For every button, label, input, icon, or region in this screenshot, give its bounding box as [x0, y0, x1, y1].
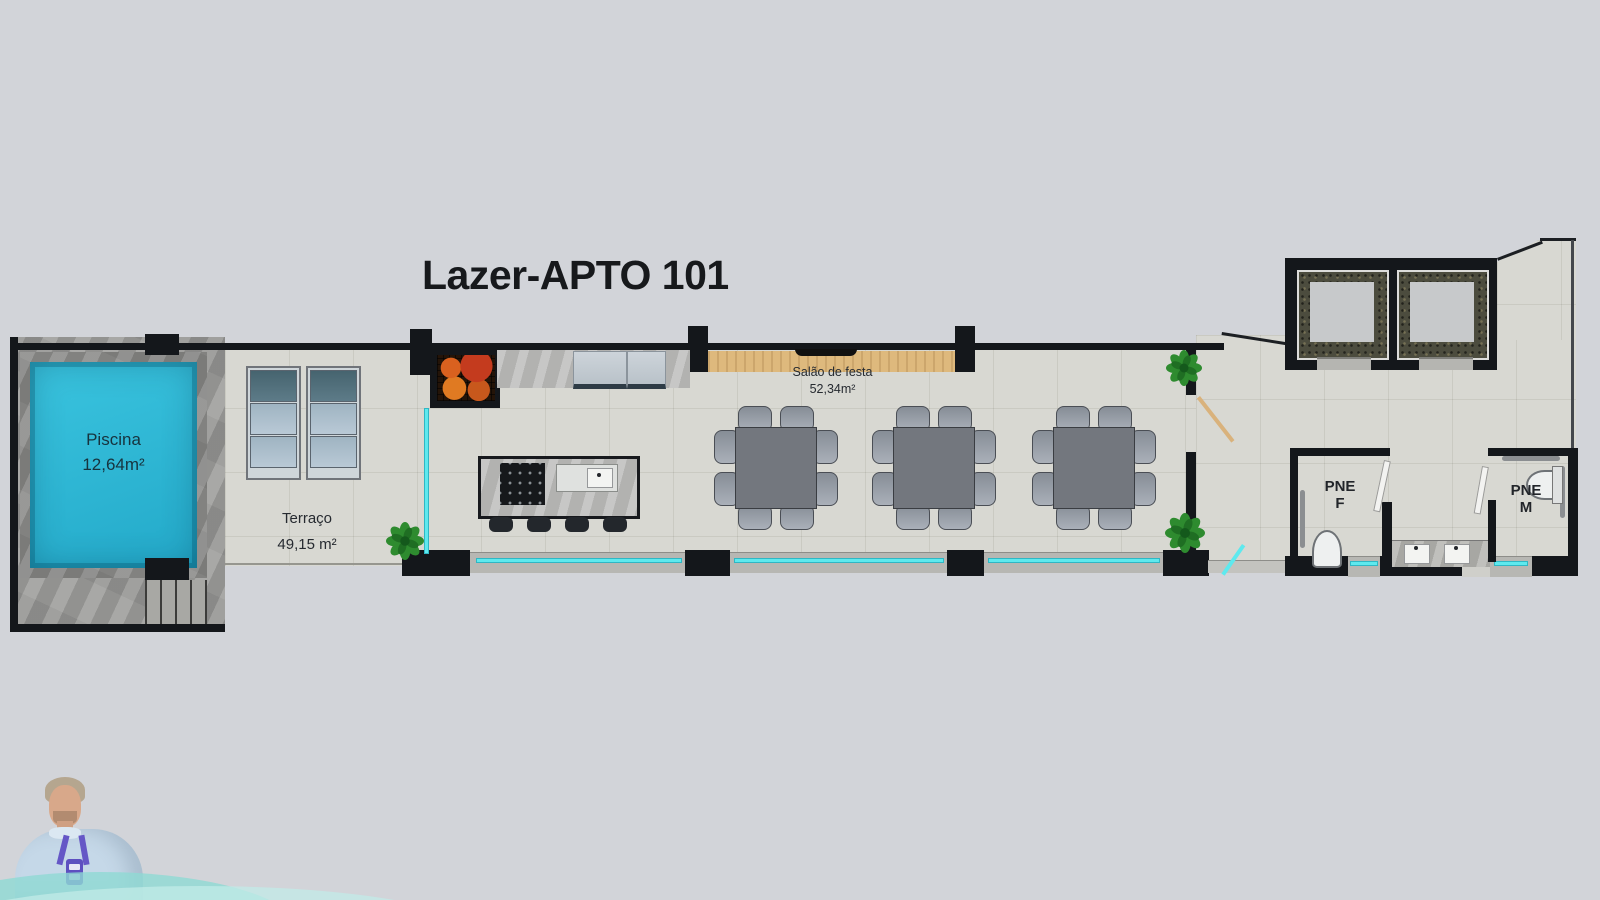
grab-bar: [1502, 456, 1560, 461]
party-hall-label: Salão de festa 52,34m²: [770, 364, 895, 398]
plant-icon: [386, 522, 424, 560]
hall-door-sill: [1208, 560, 1288, 573]
party-hall-area: 52,34m²: [770, 381, 895, 398]
wall-pool-bottom: [10, 624, 225, 632]
terrace-bottom-edge: [225, 563, 405, 565]
pool-bench: [145, 558, 189, 580]
window-glass: [476, 558, 682, 563]
faucet-icon: [1454, 546, 1458, 550]
plant-icon: [1165, 513, 1205, 553]
window-glass: [734, 558, 944, 563]
kitchen-appliance: [627, 351, 666, 389]
kitchen-appliance: [573, 351, 627, 389]
cooktop: [500, 463, 545, 505]
dining-table-set: [872, 406, 994, 528]
floor-plan-canvas: Piscina 12,64m²: [0, 0, 1600, 900]
sink-bowl: [587, 468, 613, 488]
wc-male-label: PNE M: [1490, 482, 1562, 517]
sun-lounger: [306, 366, 361, 480]
wc-female-letter: F: [1300, 495, 1380, 512]
elevator-threshold: [1317, 357, 1371, 370]
faucet-icon: [597, 473, 601, 477]
faucet-icon: [1414, 546, 1418, 550]
window-sill: [1490, 556, 1532, 577]
bar-stool: [603, 517, 627, 532]
terrace-area: 49,15 m²: [247, 532, 367, 558]
wall-wcf-top: [1290, 448, 1390, 456]
lounger-foot: [310, 436, 357, 468]
toilet: [1312, 530, 1342, 568]
terrace-name: Terraço: [247, 506, 367, 532]
wall-pillar: [955, 326, 975, 372]
window-glass: [1494, 561, 1528, 566]
dining-table-set: [714, 406, 836, 528]
pool: Piscina 12,64m²: [30, 362, 197, 568]
window-glass: [1350, 561, 1378, 566]
dining-table: [1053, 427, 1135, 509]
wall-right: [1568, 448, 1578, 576]
tv-console: [795, 349, 857, 356]
bbq-grill: [437, 355, 495, 401]
wall-pillar: [410, 329, 432, 375]
bar-stool: [565, 517, 589, 532]
pool-name: Piscina: [30, 428, 197, 453]
wall-pillar: [145, 334, 179, 355]
wall-pillar: [688, 326, 708, 372]
wall-wcf-left: [1290, 450, 1298, 562]
elevator-car: [1410, 282, 1474, 342]
wc-male-letter: M: [1490, 499, 1562, 516]
badge-photo-area: [69, 864, 80, 870]
wall-right-edge: [1571, 240, 1574, 450]
sun-lounger: [246, 366, 301, 480]
wall-pier: [685, 550, 730, 576]
window-glass: [988, 558, 1160, 563]
lounger-backrest: [250, 370, 297, 402]
lounger-foot: [250, 436, 297, 468]
elevator-car: [1310, 282, 1374, 342]
lounger-seat: [250, 403, 297, 435]
lounger-seat: [310, 403, 357, 435]
wall-top: [14, 343, 1224, 350]
wall-pier: [1163, 550, 1209, 576]
elevator-threshold: [1419, 357, 1473, 370]
wc-female-abbr: PNE: [1300, 478, 1380, 495]
window-sill: [1348, 556, 1380, 577]
lounger-backrest: [310, 370, 357, 402]
wall-left: [10, 337, 18, 632]
pool-label: Piscina 12,64m²: [30, 428, 197, 477]
wall-wcm-top: [1488, 448, 1576, 456]
wall-pier: [947, 550, 984, 576]
dining-table: [893, 427, 975, 509]
bar-stool: [527, 517, 551, 532]
pool-area: 12,64m²: [30, 453, 197, 478]
plant-icon: [1166, 349, 1202, 387]
dining-table: [735, 427, 817, 509]
wc-male-abbr: PNE: [1490, 482, 1562, 499]
wall-corridor: [1382, 502, 1392, 562]
dining-table-set: [1032, 406, 1154, 528]
glass-partition: [424, 408, 429, 554]
party-hall-name: Salão de festa: [770, 364, 895, 381]
page-title: Lazer-APTO 101: [422, 252, 729, 299]
wc-female-label: PNE F: [1300, 478, 1380, 513]
bar-stool: [489, 517, 513, 532]
island-sink: [556, 464, 618, 492]
terrace-label: Terraço 49,15 m²: [247, 506, 367, 559]
